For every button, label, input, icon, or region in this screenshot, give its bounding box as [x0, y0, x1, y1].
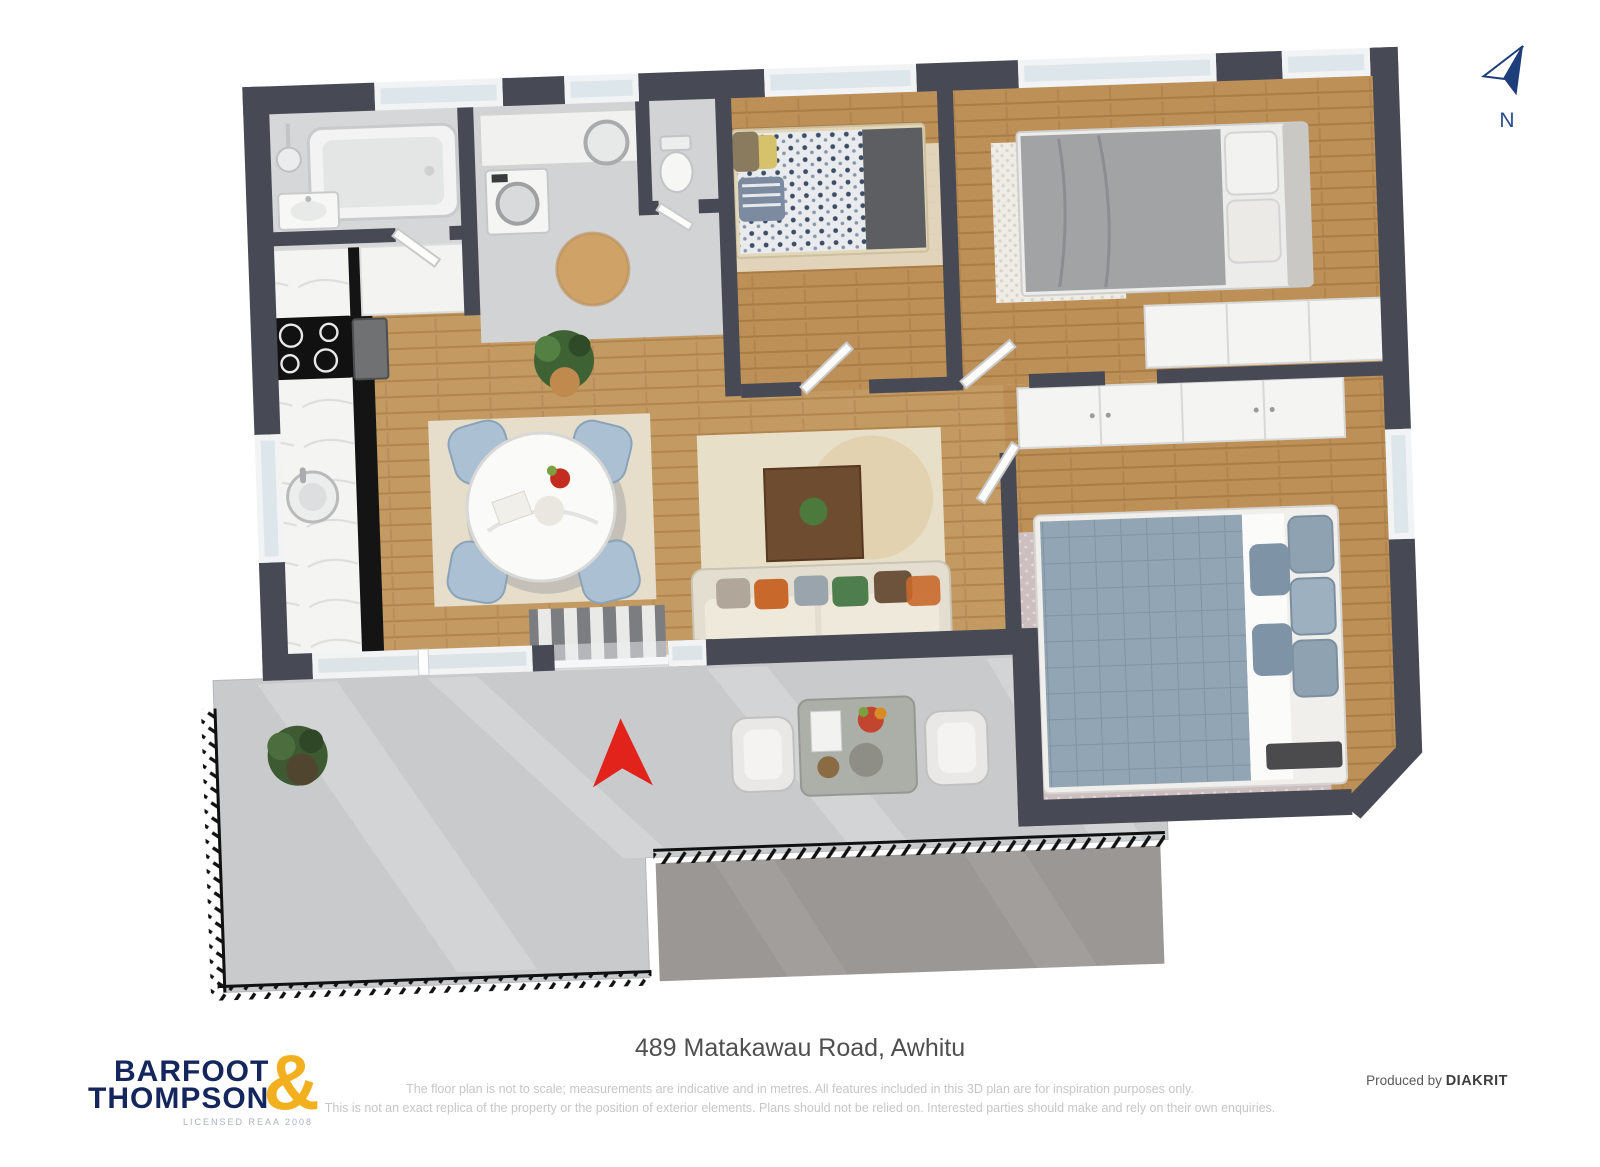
window: [668, 639, 707, 666]
north-indicator: N: [1472, 38, 1542, 128]
bedroom-2: [724, 123, 945, 272]
cushion-orange: [906, 575, 941, 606]
logo-line1: BARFOOT: [114, 1058, 269, 1086]
pillow: [1290, 577, 1336, 635]
caption-block: 489 Matakawau Road, Awhitu The floor pla…: [250, 1034, 1350, 1119]
outdoor-table: [798, 696, 917, 796]
floor-plan: [0, 0, 1600, 1167]
window: [1282, 48, 1371, 79]
master-wardrobe: [1017, 377, 1345, 448]
bed-blanket: [862, 128, 926, 250]
logo-line2: THOMPSON: [88, 1085, 269, 1113]
produced-by-label: Produced by: [1366, 1073, 1442, 1088]
window: [374, 78, 503, 110]
produced-by: Produced by DIAKRIT: [1366, 1073, 1508, 1089]
cooktop: [268, 316, 354, 381]
coffee-table: [764, 466, 863, 561]
pillow: [1227, 199, 1281, 263]
toilet: [659, 136, 693, 193]
outdoor-chair-right: [925, 710, 990, 786]
plan-group: [179, 47, 1429, 1001]
cushion: [716, 578, 751, 609]
address-title: 489 Matakawau Road, Awhitu: [250, 1034, 1350, 1063]
pillow: [1224, 131, 1278, 195]
footer: BARFOOT THOMPSON & LICENSED REAA 2008 48…: [0, 1015, 1600, 1145]
cushion-green: [832, 576, 869, 607]
pillow-brown: [732, 131, 759, 172]
pillow: [1252, 623, 1294, 676]
laundry-basket: [585, 121, 628, 164]
cushion-gray: [794, 575, 829, 606]
bedroom2-bed: [732, 123, 928, 258]
pillow: [1288, 515, 1334, 573]
disclaimer-line-1: The floor plan is not to scale; measurem…: [250, 1081, 1350, 1098]
outdoor-chair-left: [731, 716, 796, 792]
master-bed: [1034, 505, 1348, 793]
washing-machine: [485, 169, 549, 235]
window: [564, 73, 639, 104]
pillow: [1292, 639, 1338, 697]
pillow: [1249, 543, 1291, 596]
bed-bench: [1266, 741, 1343, 770]
floor-plan-page: N BARFOOT THOMPSON & LICENSED REAA 2008 …: [0, 0, 1600, 1167]
oven: [352, 318, 388, 379]
north-label: N: [1472, 109, 1542, 133]
bedroom1-bed: [1016, 122, 1314, 296]
cushion-orange: [754, 578, 789, 609]
sliding-door: [554, 641, 669, 671]
window: [764, 64, 917, 97]
north-arrow-icon: [1472, 38, 1542, 102]
bedroom1-wardrobe: [1144, 297, 1392, 368]
wc: [659, 136, 693, 193]
dining-area: [428, 411, 657, 612]
producer-name: DIAKRIT: [1446, 1073, 1508, 1089]
window: [1385, 429, 1415, 540]
disclaimer-line-2: This is not an exact replica of the prop…: [250, 1100, 1350, 1117]
bathroom-sink: [278, 192, 339, 230]
window: [254, 434, 284, 563]
